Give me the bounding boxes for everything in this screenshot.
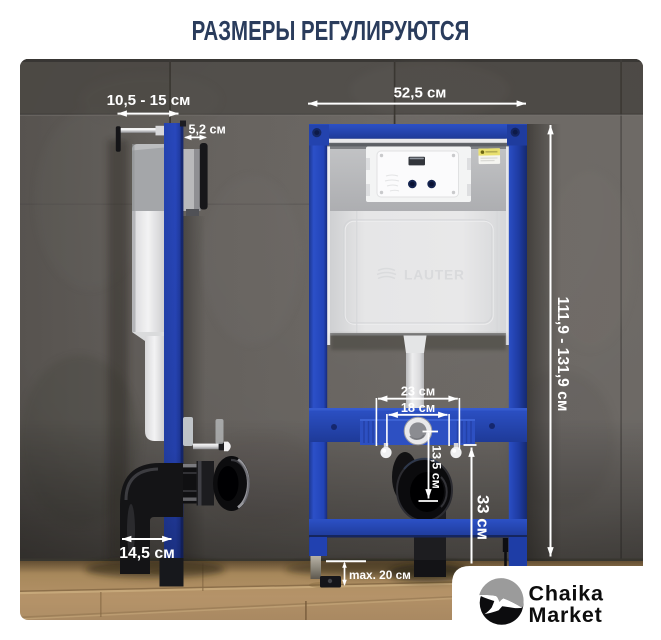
svg-text:18 см: 18 см	[401, 400, 435, 415]
svg-text:5,2 см: 5,2 см	[189, 123, 226, 137]
svg-text:max. 20 см: max. 20 см	[349, 568, 411, 582]
svg-text:23 см: 23 см	[401, 384, 435, 399]
svg-text:33 см: 33 см	[474, 495, 493, 540]
svg-text:Market: Market	[529, 603, 603, 627]
svg-text:LAUTER: LAUTER	[404, 268, 465, 283]
svg-text:10,5 - 15 см: 10,5 - 15 см	[107, 92, 191, 109]
svg-text:111,9 - 131,9 см: 111,9 - 131,9 см	[554, 297, 571, 412]
svg-text:14,5 см: 14,5 см	[119, 545, 175, 562]
svg-text:РАЗМЕРЫ РЕГУЛИРУЮТСЯ: РАЗМЕРЫ РЕГУЛИРУЮТСЯ	[192, 16, 470, 47]
svg-text:Chaika: Chaika	[529, 582, 605, 606]
svg-text:13,5 см: 13,5 см	[430, 445, 444, 489]
svg-text:52,5 см: 52,5 см	[394, 85, 447, 102]
